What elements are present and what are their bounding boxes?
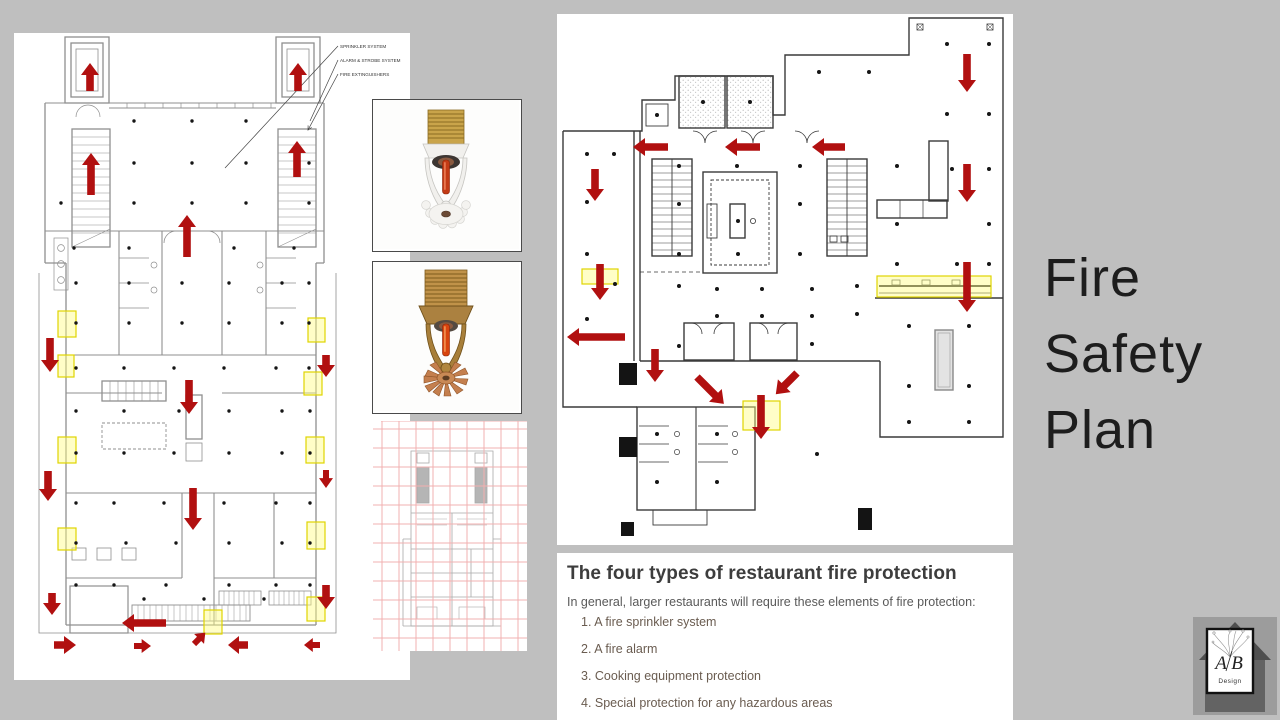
- sprinkler-dot: [307, 281, 310, 284]
- sprinkler-dot: [715, 480, 719, 484]
- evacuation-arrow: [725, 138, 760, 156]
- sprinkler-dot: [987, 262, 991, 266]
- extinguisher-highlight: [306, 437, 324, 463]
- evacuation-arrow: [691, 371, 731, 411]
- sprinkler-dot: [810, 287, 814, 291]
- sprinkler-dot: [798, 164, 802, 168]
- logo-graphic: A B Design: [1193, 617, 1277, 715]
- sprinkler-dot: [308, 451, 311, 454]
- sprinkler-dot: [190, 161, 193, 164]
- extinguisher-highlight: [204, 610, 222, 634]
- sprinkler-dot: [262, 597, 265, 600]
- sprinkler-dot: [180, 281, 183, 284]
- evacuation-arrow: [43, 593, 61, 615]
- fire-safety-slide: SPRINKLER SYSTEM ALARM & STROBE SYSTEM F…: [0, 0, 1280, 720]
- sprinkler-dot: [274, 583, 277, 586]
- sprinkler-dot: [760, 287, 764, 291]
- sprinkler-dot: [895, 164, 899, 168]
- plan2: [557, 14, 1013, 545]
- sprinkler-dot: [172, 366, 175, 369]
- sprinkler-dot: [124, 541, 127, 544]
- sprinkler-dot: [280, 541, 283, 544]
- sprinkler-dot: [810, 314, 814, 318]
- sprinkler-dot: [122, 451, 125, 454]
- sprinkler-dot: [907, 324, 911, 328]
- floor-plan-1-panel: SPRINKLER SYSTEM ALARM & STROBE SYSTEM F…: [14, 33, 410, 680]
- sprinkler-dot: [132, 161, 135, 164]
- sprinkler-dot: [612, 152, 616, 156]
- evacuation-arrow: [958, 54, 976, 92]
- sprinkler-dot: [180, 321, 183, 324]
- evacuation-arrow: [958, 164, 976, 202]
- sprinkler-dot: [655, 113, 659, 117]
- sprinkler-dot: [202, 597, 205, 600]
- sprinkler-dot: [677, 202, 681, 206]
- sprinkler-dot: [585, 200, 589, 204]
- sprinkler-dot: [127, 246, 130, 249]
- evacuation-arrow: [586, 169, 604, 201]
- sprinkler-dot: [142, 597, 145, 600]
- sprinkler-dot: [748, 100, 752, 104]
- sprinkler-dot: [867, 70, 871, 74]
- sprinkler-dot: [227, 281, 230, 284]
- list-item: 2. A fire alarm: [581, 642, 1001, 656]
- sprinkler-dot: [280, 451, 283, 454]
- sprinkler-dot: [222, 501, 225, 504]
- sprinkler-dot: [280, 409, 283, 412]
- sprinkler-dot: [945, 112, 949, 116]
- extinguisher-highlight: [58, 355, 74, 377]
- fire-protection-text-box: The four types of restaurant fire protec…: [557, 553, 1013, 720]
- sprinkler-dot: [585, 252, 589, 256]
- extinguisher-highlight: [307, 522, 325, 549]
- sprinkler-dot: [735, 164, 739, 168]
- sprinkler-dot: [132, 201, 135, 204]
- sprinkler-dot: [132, 119, 135, 122]
- sprinkler-dot: [74, 583, 77, 586]
- sprinkler-dot: [74, 451, 77, 454]
- protection-list: 1. A fire sprinkler system 2. A fire ala…: [567, 615, 1001, 710]
- sprinkler-dot: [585, 152, 589, 156]
- evacuation-arrow: [289, 63, 307, 91]
- sprinkler-dot: [274, 366, 277, 369]
- sprinkler-dot: [59, 201, 62, 204]
- sprinkler-dot: [244, 119, 247, 122]
- sprinkler-dot: [950, 167, 954, 171]
- evacuation-arrow: [81, 63, 99, 91]
- protection-title: The four types of restaurant fire protec…: [567, 563, 1001, 585]
- evacuation-arrow: [288, 141, 306, 177]
- sprinkler-dot: [945, 42, 949, 46]
- extinguisher-highlight: [58, 528, 76, 550]
- sprinkler-dot: [222, 366, 225, 369]
- sprinkler-dot: [655, 480, 659, 484]
- extinguisher-highlight: [304, 372, 322, 395]
- sprinkler-dot: [274, 501, 277, 504]
- sprinkler-coverage-grid-plan: [373, 421, 527, 651]
- sprinkler-dot: [227, 583, 230, 586]
- sprinkler-dot: [292, 246, 295, 249]
- evacuation-arrow: [134, 639, 151, 653]
- sprinkler-dot: [174, 541, 177, 544]
- sprinkler-dot: [164, 583, 167, 586]
- sprinkler-photo-brass: [372, 261, 522, 414]
- sprinkler-dot: [280, 281, 283, 284]
- sprinkler-dot: [907, 384, 911, 388]
- evacuation-arrow: [567, 328, 625, 346]
- sprinkler-dot: [585, 317, 589, 321]
- evacuation-arrow: [178, 215, 196, 257]
- sprinkler-dot: [308, 541, 311, 544]
- sprinkler-dot: [74, 281, 77, 284]
- sprinkler-dot: [122, 366, 125, 369]
- sprinkler-dot: [74, 409, 77, 412]
- sprinkler-dot: [798, 252, 802, 256]
- sprinkler-dot: [987, 167, 991, 171]
- evacuation-arrow: [633, 138, 668, 156]
- sprinkler-dot: [987, 112, 991, 116]
- sprinkler-dot: [677, 252, 681, 256]
- extinguisher-highlights: [582, 269, 991, 430]
- sprinkler-dot: [280, 321, 283, 324]
- sprinkler-dot: [715, 314, 719, 318]
- evacuation-arrow: [812, 138, 845, 156]
- sprinkler-dot: [715, 287, 719, 291]
- white-pendant-sprinkler-icon: [373, 100, 519, 249]
- sprinkler-dot: [715, 432, 719, 436]
- evacuation-arrows: [39, 63, 335, 654]
- sprinkler-dot: [127, 281, 130, 284]
- sprinkler-dot: [190, 201, 193, 204]
- title-line: Fire: [1044, 240, 1274, 316]
- evacuation-arrow: [769, 367, 803, 401]
- plan1: SPRINKLER SYSTEM ALARM & STROBE SYSTEM F…: [14, 33, 410, 680]
- sprinkler-dot: [655, 432, 659, 436]
- sprinkler-dot: [227, 541, 230, 544]
- sprinkler-dot: [967, 384, 971, 388]
- sprinkler-dot: [855, 312, 859, 316]
- sprinkler-dot: [308, 501, 311, 504]
- floor-plan-2-panel: [557, 14, 1013, 545]
- sprinkler-dot: [74, 366, 77, 369]
- sprinkler-dot: [308, 583, 311, 586]
- sprinkler-dot: [955, 262, 959, 266]
- title-line: Safety: [1044, 316, 1274, 392]
- sprinkler-dot: [798, 202, 802, 206]
- sprinkler-dot: [677, 284, 681, 288]
- sprinkler-dot: [74, 501, 77, 504]
- sprinkler-dot: [232, 246, 235, 249]
- sprinkler-dot: [677, 164, 681, 168]
- slide-title: Fire Safety Plan: [1044, 240, 1274, 468]
- sprinkler-dot: [177, 409, 180, 412]
- extinguisher-highlight: [58, 311, 76, 337]
- sprinkler-dot: [227, 451, 230, 454]
- sprinkler-dot: [244, 161, 247, 164]
- sprinkler-dot: [760, 314, 764, 318]
- sprinkler-dot: [307, 366, 310, 369]
- sprinkler-dot: [308, 409, 311, 412]
- sprinkler-dot: [967, 324, 971, 328]
- sprinkler-dot: [613, 282, 617, 286]
- logo-card: A B Design: [1207, 629, 1253, 693]
- sprinkler-dot: [112, 583, 115, 586]
- evacuation-arrow: [646, 349, 664, 382]
- annotation-fire-extinguishers: FIRE EXTINGUISHERS: [340, 72, 389, 77]
- sprinkler-dot: [74, 541, 77, 544]
- evacuation-arrow: [39, 471, 57, 501]
- sprinkler-dot: [162, 501, 165, 504]
- sprinkler-photo-white: [372, 99, 522, 252]
- sprinkler-dot: [122, 409, 125, 412]
- sprinkler-dot: [907, 420, 911, 424]
- protection-intro: In general, larger restaurants will requ…: [567, 595, 1001, 609]
- sprinkler-dot: [817, 70, 821, 74]
- logo-subtitle: Design: [1218, 678, 1241, 685]
- sprinkler-dot: [112, 501, 115, 504]
- sprinkler-dot: [855, 284, 859, 288]
- annotation-alarm-strobe-system: ALARM & STROBE SYSTEM: [340, 58, 401, 63]
- logo-monogram-b: B: [1231, 653, 1243, 674]
- evacuation-arrow: [319, 470, 333, 488]
- sprinkler-dot: [307, 161, 310, 164]
- sprinkler-dot: [701, 100, 705, 104]
- logo-monogram-a: A: [1213, 653, 1227, 674]
- sprinkler-dot: [227, 321, 230, 324]
- annotation-sprinkler-system: SPRINKLER SYSTEM: [340, 44, 386, 49]
- evacuation-arrow: [180, 380, 198, 414]
- sprinkler-dot: [227, 409, 230, 412]
- sprinkler-dot: [895, 222, 899, 226]
- extinguisher-highlight: [877, 276, 991, 297]
- sprinkler-dot: [987, 222, 991, 226]
- ab-design-logo: A B Design: [1193, 617, 1277, 715]
- coverage-grid-icon: [373, 421, 527, 651]
- sprinkler-dot: [677, 344, 681, 348]
- brass-pendant-sprinkler-icon: [373, 262, 519, 411]
- evacuation-arrow: [41, 338, 59, 372]
- sprinkler-dot: [736, 252, 740, 256]
- extinguisher-highlight: [308, 318, 325, 342]
- sprinkler-dot: [307, 321, 310, 324]
- evacuation-arrow: [54, 636, 76, 654]
- sprinkler-dot: [244, 201, 247, 204]
- list-item: 1. A fire sprinkler system: [581, 615, 1001, 629]
- evacuation-arrow: [184, 488, 202, 530]
- sprinkler-dot: [987, 42, 991, 46]
- sprinkler-dot: [172, 451, 175, 454]
- sprinkler-dot: [736, 219, 740, 223]
- sprinkler-dot: [967, 420, 971, 424]
- sprinkler-dot: [815, 452, 819, 456]
- title-line: Plan: [1044, 392, 1274, 468]
- sprinkler-dot: [72, 246, 75, 249]
- evacuation-arrow: [82, 153, 100, 195]
- sprinkler-dot: [190, 119, 193, 122]
- plan1-walls: [39, 37, 336, 633]
- list-item: 3. Cooking equipment protection: [581, 669, 1001, 683]
- sprinkler-dot: [895, 262, 899, 266]
- sprinkler-dot: [74, 321, 77, 324]
- sprinkler-dot: [127, 321, 130, 324]
- sprinkler-dot: [810, 342, 814, 346]
- list-item: 4. Special protection for any hazardous …: [581, 696, 1001, 710]
- extinguisher-highlight: [58, 437, 76, 463]
- evacuation-arrow: [304, 638, 320, 652]
- sprinkler-dot: [307, 201, 310, 204]
- evacuation-arrow: [228, 636, 248, 654]
